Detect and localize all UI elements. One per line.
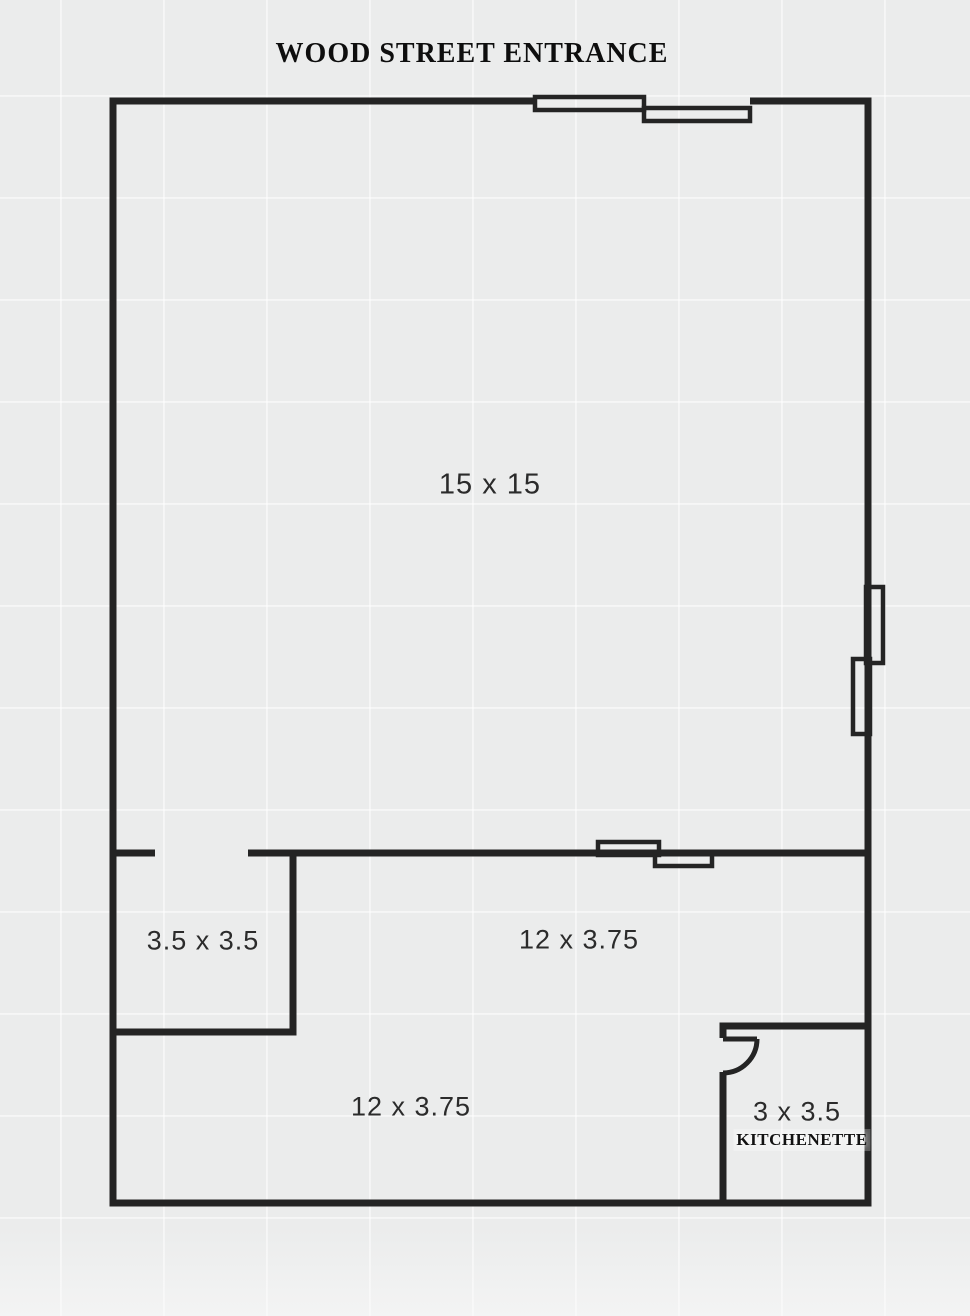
interior-sliding-door-panel-upper-icon — [598, 842, 659, 855]
lower-corridor-label: 12 x 3.75 — [351, 1092, 471, 1123]
floor-plan-canvas: WOOD STREET ENTRANCE — [0, 0, 970, 1316]
kitchenette-door-swing-arc-icon — [723, 1039, 757, 1073]
kitchenette-dimension-label: 3 x 3.5 — [753, 1097, 841, 1128]
kitchenette-top-and-corner-wall — [723, 1026, 868, 1038]
kitchenette-name-label: KITCHENETTE — [733, 1129, 870, 1151]
upper-corridor-label: 12 x 3.75 — [519, 925, 639, 956]
side-room-label: 3.5 x 3.5 — [147, 926, 260, 957]
main-room-label: 15 x 15 — [439, 469, 541, 502]
entrance-sliding-door-panel-outer-icon — [535, 97, 644, 110]
entrance-sliding-door-panel-inner-icon — [644, 108, 750, 121]
interior-sliding-door-panel-lower-icon — [655, 853, 712, 866]
